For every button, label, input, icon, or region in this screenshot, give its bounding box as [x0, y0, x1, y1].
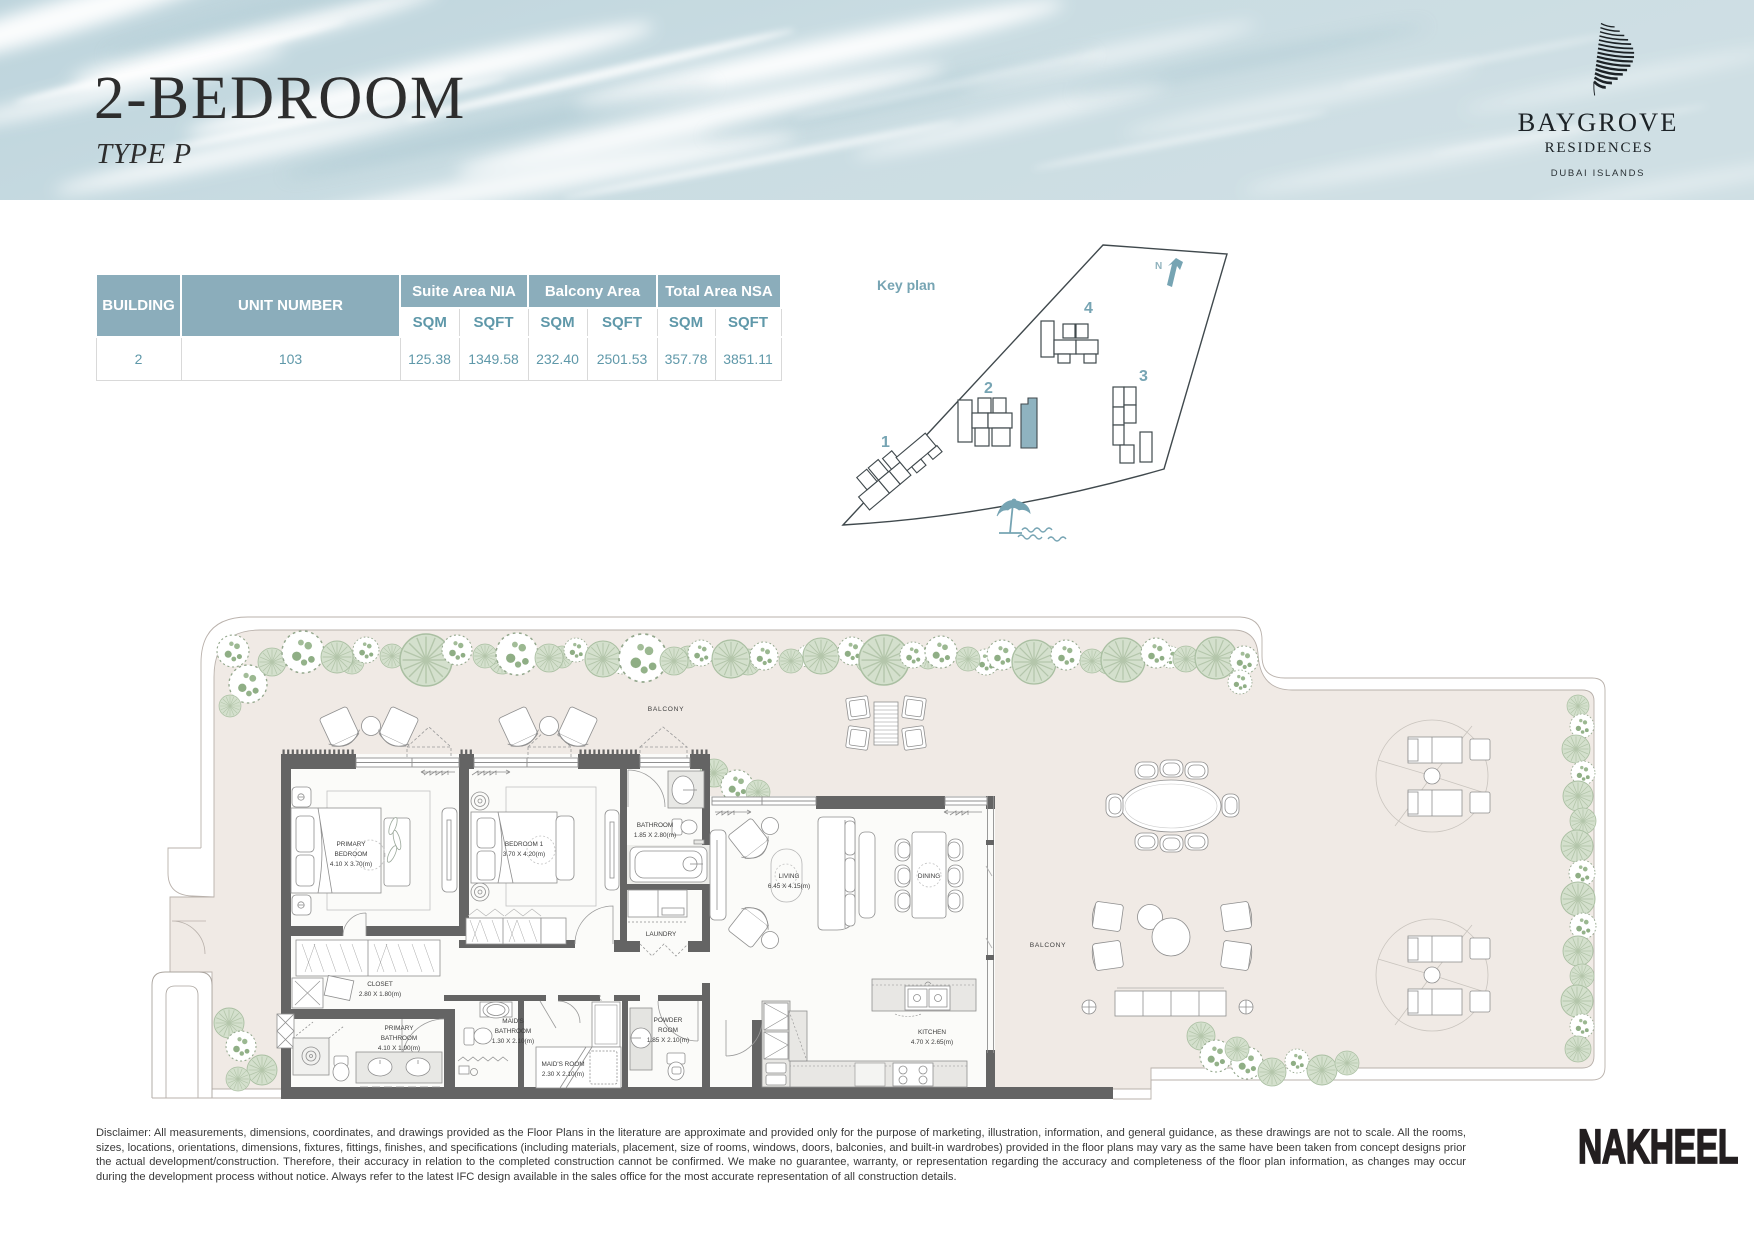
svg-text:BEDROOM 1: BEDROOM 1 — [505, 841, 544, 848]
svg-text:2: 2 — [984, 380, 993, 397]
svg-text:BEDROOM: BEDROOM — [334, 851, 367, 858]
svg-text:Key plan: Key plan — [877, 277, 935, 293]
svg-text:MAID'S ROOM: MAID'S ROOM — [541, 1061, 584, 1068]
svg-text:LIVING: LIVING — [779, 873, 800, 880]
svg-text:1.85 X 2.80(m): 1.85 X 2.80(m) — [634, 832, 676, 839]
svg-text:3.70 X 4.20(m): 3.70 X 4.20(m) — [503, 851, 545, 858]
svg-text:4.10 X 3.70(m): 4.10 X 3.70(m) — [330, 861, 372, 868]
svg-text:4.10 X 1.90(m): 4.10 X 1.90(m) — [378, 1045, 420, 1052]
svg-text:2.80 X 1.80(m): 2.80 X 1.80(m) — [359, 991, 401, 998]
svg-text:BATHROOM: BATHROOM — [637, 822, 673, 829]
svg-text:CLOSET: CLOSET — [367, 981, 393, 988]
svg-text:POWDER: POWDER — [654, 1017, 683, 1024]
svg-text:BATHROOM: BATHROOM — [495, 1028, 531, 1035]
svg-text:DINING: DINING — [918, 873, 940, 880]
svg-text:KITCHEN: KITCHEN — [918, 1029, 946, 1036]
svg-text:ROOM: ROOM — [658, 1027, 678, 1034]
svg-text:4: 4 — [1084, 300, 1093, 317]
svg-text:3: 3 — [1139, 368, 1148, 385]
svg-text:NAKHEEL: NAKHEEL — [1578, 1121, 1738, 1174]
svg-text:1.85 X 2.10(m): 1.85 X 2.10(m) — [647, 1037, 689, 1044]
svg-text:2.30 X 2.10(m): 2.30 X 2.10(m) — [542, 1071, 584, 1078]
svg-text:6.45 X 4.15(m): 6.45 X 4.15(m) — [768, 883, 810, 890]
svg-text:N: N — [1155, 261, 1162, 272]
svg-text:LAUNDRY: LAUNDRY — [646, 931, 677, 938]
svg-text:4.70 X 2.65(m): 4.70 X 2.65(m) — [911, 1039, 953, 1046]
svg-text:BALCONY: BALCONY — [648, 706, 684, 713]
svg-text:MAID'S: MAID'S — [502, 1018, 523, 1025]
svg-text:1.30 X 2.10(m): 1.30 X 2.10(m) — [492, 1038, 534, 1045]
svg-text:BATHROOM: BATHROOM — [381, 1035, 417, 1042]
svg-text:BALCONY: BALCONY — [1030, 942, 1066, 949]
svg-text:PRIMARY: PRIMARY — [384, 1025, 414, 1032]
svg-text:1: 1 — [881, 434, 890, 451]
